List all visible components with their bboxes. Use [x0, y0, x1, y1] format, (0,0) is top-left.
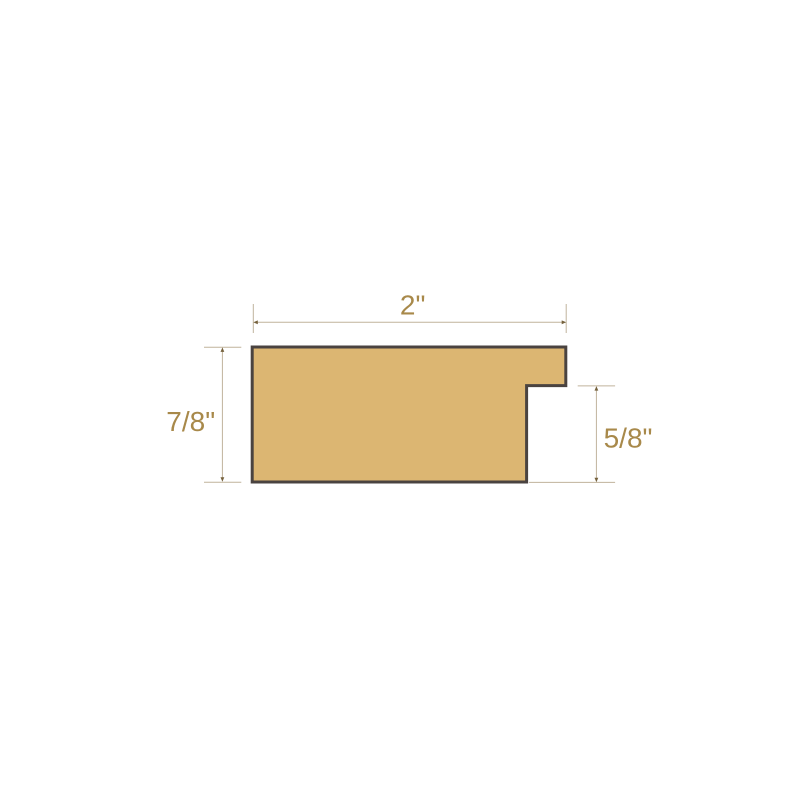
svg-text:2": 2" — [400, 290, 426, 321]
svg-text:7/8": 7/8" — [166, 406, 215, 437]
svg-text:5/8": 5/8" — [604, 423, 653, 454]
